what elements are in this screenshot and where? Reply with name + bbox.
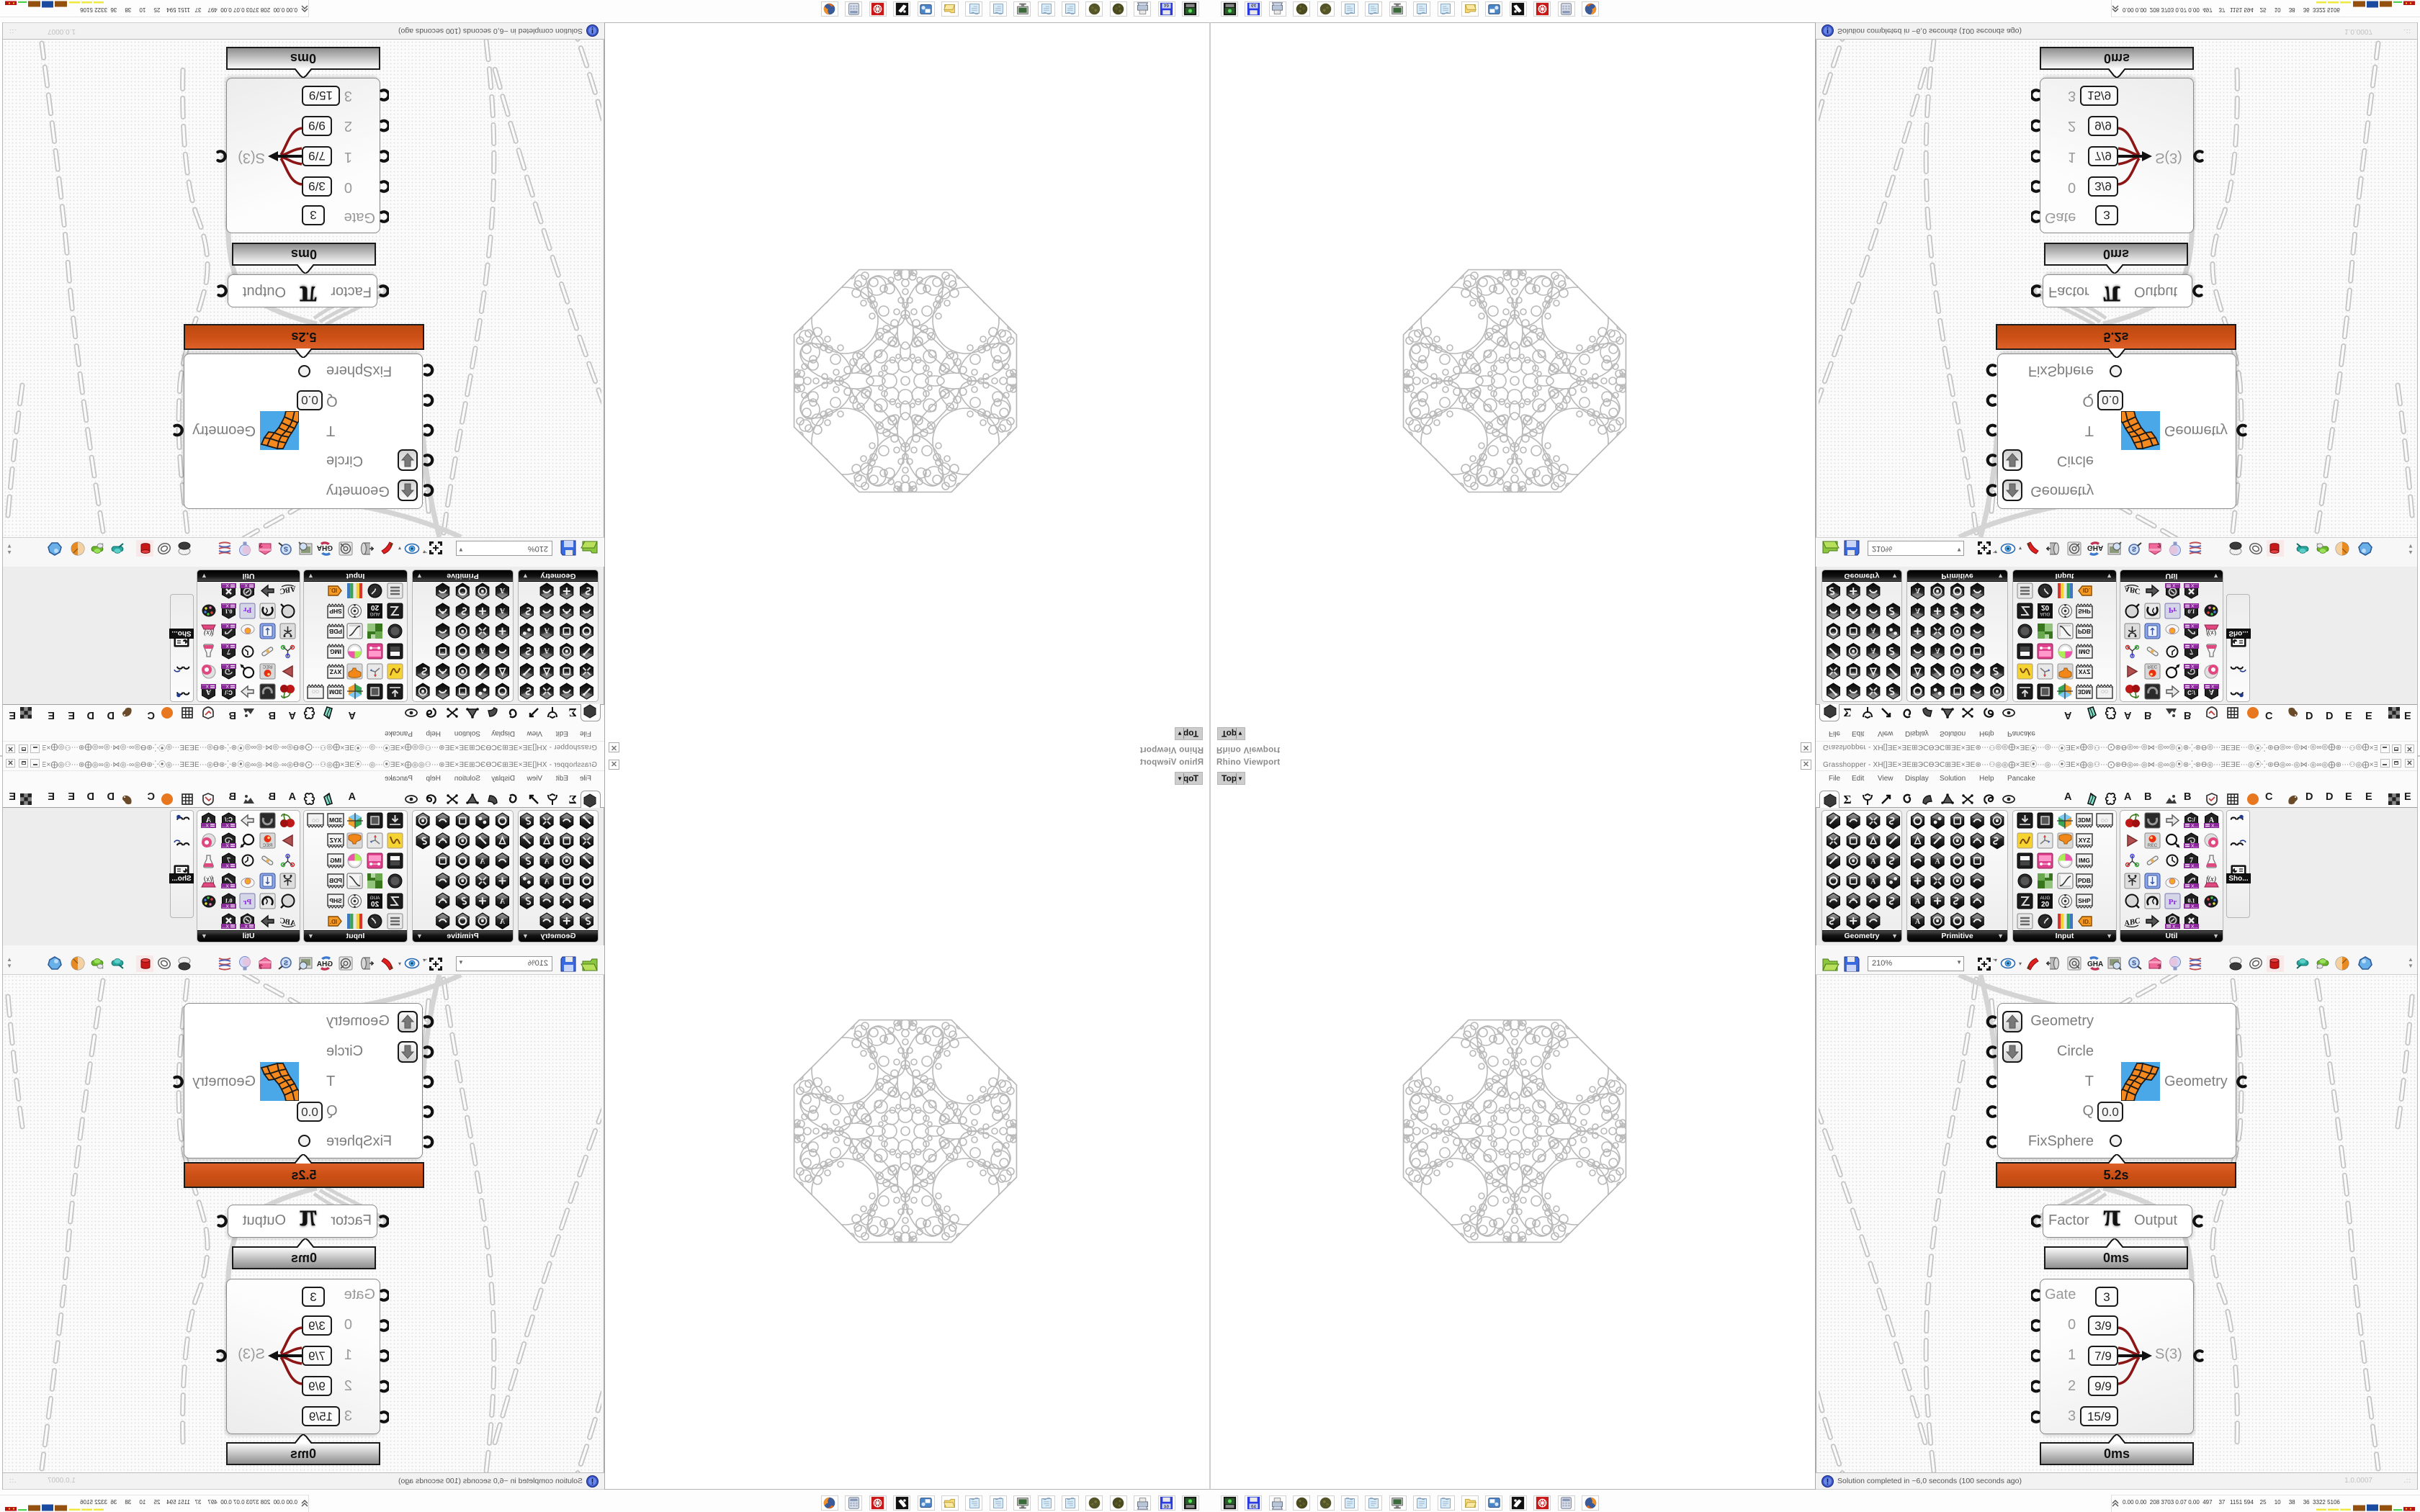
svg-text:f(x): f(x) (2206, 629, 2217, 636)
svg-text:GHA: GHA (2087, 544, 2103, 552)
svg-text:f(x): f(x) (203, 629, 214, 636)
svg-text:AUG: AUG (2040, 896, 2050, 901)
svg-text:X...: X... (222, 844, 229, 849)
svg-text:▼: ▼ (6, 543, 12, 549)
svg-text:Σ: Σ (1843, 706, 1851, 719)
svg-text:▲: ▲ (2408, 956, 2414, 963)
svg-text:X...: X... (2191, 844, 2198, 849)
svg-text:3DM: 3DM (2078, 688, 2091, 696)
svg-text:0.1: 0.1 (225, 898, 233, 904)
svg-text:X...: X... (222, 924, 229, 930)
svg-text:?: ? (259, 541, 264, 549)
svg-text:Pr: Pr (243, 606, 252, 614)
svg-text:X...: X... (222, 884, 229, 889)
svg-text:20: 20 (2041, 901, 2050, 909)
svg-text:3DM: 3DM (329, 688, 342, 696)
svg-text:AUG: AUG (369, 611, 380, 616)
svg-text:Pr: Pr (243, 898, 252, 906)
svg-text:X...: X... (222, 864, 229, 869)
svg-text:▼: ▼ (2408, 963, 2414, 969)
svg-text:SHP: SHP (2078, 897, 2091, 904)
svg-text:X...: X... (2191, 824, 2198, 829)
svg-text:Pr: Pr (2169, 898, 2177, 906)
svg-text:▲: ▲ (6, 549, 12, 556)
svg-text:X...: X... (2191, 864, 2198, 869)
svg-text:X...: X... (2191, 904, 2198, 909)
svg-text:X...: X... (241, 582, 248, 588)
svg-text:Pr: Pr (2169, 606, 2177, 614)
svg-text:IMG: IMG (2079, 857, 2090, 864)
svg-text:?: ? (259, 963, 264, 971)
svg-text:X...: X... (2191, 582, 2198, 588)
svg-text:◌◌: ◌◌ (2101, 816, 2108, 824)
svg-text:3DM: 3DM (329, 816, 342, 824)
svg-text:XYZ: XYZ (2079, 668, 2091, 675)
svg-text:X...: X... (2191, 683, 2198, 688)
svg-text:Σ: Σ (568, 706, 576, 719)
svg-text:REC: REC (2148, 664, 2158, 669)
svg-text:ABC: ABC (279, 917, 297, 929)
svg-text:▾: ▾ (2019, 960, 2022, 967)
svg-text:▾: ▾ (398, 960, 401, 967)
svg-text:64: 64 (1251, 3, 1256, 7)
svg-text:X...: X... (202, 824, 209, 829)
svg-text:▼: ▼ (6, 963, 12, 969)
svg-text:GHA: GHA (317, 960, 333, 968)
svg-text:X...: X... (2191, 884, 2198, 889)
svg-text:XYZ: XYZ (330, 668, 342, 675)
svg-text:GHA: GHA (317, 544, 333, 552)
svg-text:0.1: 0.1 (2188, 898, 2195, 904)
svg-text:S: S (284, 960, 288, 967)
svg-text:f(x): f(x) (2206, 876, 2217, 883)
svg-text:?: ? (2157, 963, 2161, 971)
svg-text:X...: X... (2191, 924, 2198, 930)
svg-text:PDB: PDB (2078, 628, 2091, 635)
svg-text:X...: X... (2211, 683, 2218, 688)
svg-text:◌◌: ◌◌ (312, 688, 319, 696)
svg-text:ABC: ABC (2123, 584, 2141, 596)
svg-text:▾: ▾ (1994, 957, 1997, 963)
svg-text:ID.: ID. (2083, 587, 2090, 593)
svg-text:▲: ▲ (6, 956, 12, 963)
svg-text:C:/: C:/ (2187, 689, 2195, 696)
svg-text:0.1: 0.1 (2188, 608, 2195, 615)
svg-text:REC: REC (262, 664, 272, 669)
svg-text:AUG: AUG (2040, 611, 2050, 616)
svg-text:64: 64 (1251, 1505, 1256, 1509)
svg-text:◌◌: ◌◌ (312, 816, 319, 824)
svg-text:X...: X... (2191, 663, 2198, 668)
svg-text:GHA: GHA (2087, 960, 2103, 968)
svg-text:PDB: PDB (329, 628, 342, 635)
svg-text:ID.: ID. (330, 587, 337, 593)
svg-text:SHP: SHP (2078, 608, 2091, 615)
svg-text:20: 20 (371, 901, 380, 909)
svg-text:C:/: C:/ (224, 816, 232, 823)
svg-text:XYZ: XYZ (330, 837, 342, 844)
svg-text:REC: REC (2148, 843, 2158, 848)
svg-text:PDB: PDB (329, 877, 342, 884)
svg-text:▾: ▾ (2019, 545, 2022, 552)
svg-text:IMG: IMG (330, 857, 341, 864)
svg-text:X...: X... (202, 683, 209, 688)
svg-text:ID.: ID. (330, 919, 337, 925)
svg-text:X...: X... (222, 643, 229, 648)
svg-text:X...: X... (2172, 924, 2179, 930)
svg-text:X...: X... (222, 582, 229, 588)
svg-text:!: ! (591, 25, 594, 35)
svg-text:IMG: IMG (2079, 648, 2090, 655)
svg-text:S: S (2132, 960, 2136, 967)
svg-text:!: ! (591, 1477, 594, 1487)
svg-text:PDB: PDB (2078, 877, 2091, 884)
svg-text:!: ! (1827, 25, 1829, 35)
svg-text:S: S (284, 546, 288, 553)
svg-text:X...: X... (2191, 643, 2198, 648)
svg-text:X...: X... (222, 663, 229, 668)
svg-text:X...: X... (2172, 582, 2179, 588)
svg-text:IMG: IMG (330, 648, 341, 655)
svg-text:▼: ▼ (2408, 543, 2414, 549)
svg-text:Σ: Σ (568, 793, 576, 806)
svg-text:64: 64 (1164, 1505, 1169, 1509)
svg-text:▾: ▾ (1994, 549, 1997, 555)
svg-text:SHP: SHP (329, 608, 342, 615)
svg-text:X...: X... (2211, 824, 2218, 829)
svg-text:C:/: C:/ (224, 689, 232, 696)
svg-text:20: 20 (2041, 603, 2050, 611)
svg-text:XYZ: XYZ (2079, 837, 2091, 844)
svg-text:X...: X... (222, 904, 229, 909)
svg-text:SHP: SHP (329, 897, 342, 904)
svg-text:0.1: 0.1 (225, 608, 233, 615)
svg-text:X...: X... (2191, 603, 2198, 608)
svg-text:▾: ▾ (398, 545, 401, 552)
svg-text:f(x): f(x) (203, 876, 214, 883)
svg-text:X...: X... (222, 603, 229, 608)
svg-text:S: S (2132, 546, 2136, 553)
svg-text:ID.: ID. (2083, 919, 2090, 925)
svg-text:Σ: Σ (1843, 793, 1851, 806)
svg-text:C:/: C:/ (2187, 816, 2195, 823)
svg-text:REC: REC (262, 843, 272, 848)
svg-text:X...: X... (2191, 623, 2198, 628)
svg-text:▾: ▾ (423, 549, 426, 555)
svg-text:X...: X... (222, 824, 229, 829)
svg-text:3DM: 3DM (2078, 816, 2091, 824)
svg-text:AUG: AUG (369, 896, 380, 901)
svg-text:▾: ▾ (423, 957, 426, 963)
svg-text:ABC: ABC (279, 584, 297, 596)
svg-text:?: ? (2157, 541, 2161, 549)
svg-text:64: 64 (1164, 3, 1169, 7)
svg-text:!: ! (1827, 1477, 1829, 1487)
svg-text:X...: X... (222, 623, 229, 628)
svg-text:ABC: ABC (2123, 917, 2141, 929)
svg-text:X...: X... (241, 924, 248, 930)
svg-text:▲: ▲ (2408, 549, 2414, 556)
svg-text:◌◌: ◌◌ (2101, 688, 2108, 696)
svg-text:20: 20 (371, 603, 380, 611)
svg-text:X...: X... (222, 683, 229, 688)
